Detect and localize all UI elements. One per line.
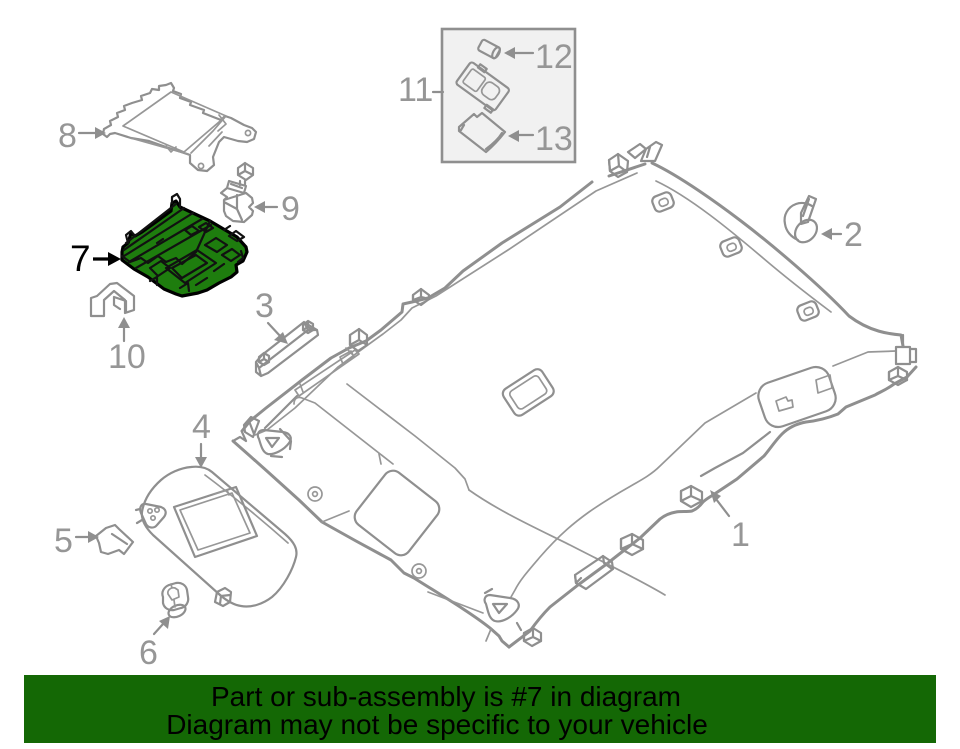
svg-text:13: 13	[535, 120, 573, 158]
svg-text:5: 5	[54, 522, 73, 560]
svg-text:Diagram may not be specific to: Diagram may not be specific to your vehi…	[166, 709, 708, 740]
svg-text:8: 8	[58, 117, 77, 155]
svg-text:3: 3	[255, 287, 274, 325]
svg-text:12: 12	[535, 38, 573, 76]
svg-text:4: 4	[192, 408, 211, 446]
svg-text:11: 11	[398, 71, 433, 109]
svg-text:10: 10	[108, 338, 146, 376]
svg-text:Part or sub-assembly is #7 in: Part or sub-assembly is #7 in diagram	[211, 681, 681, 712]
svg-text:9: 9	[281, 190, 300, 228]
svg-text:2: 2	[844, 216, 863, 254]
svg-text:1: 1	[731, 516, 750, 554]
svg-text:7: 7	[70, 238, 91, 279]
svg-text:6: 6	[139, 634, 158, 672]
